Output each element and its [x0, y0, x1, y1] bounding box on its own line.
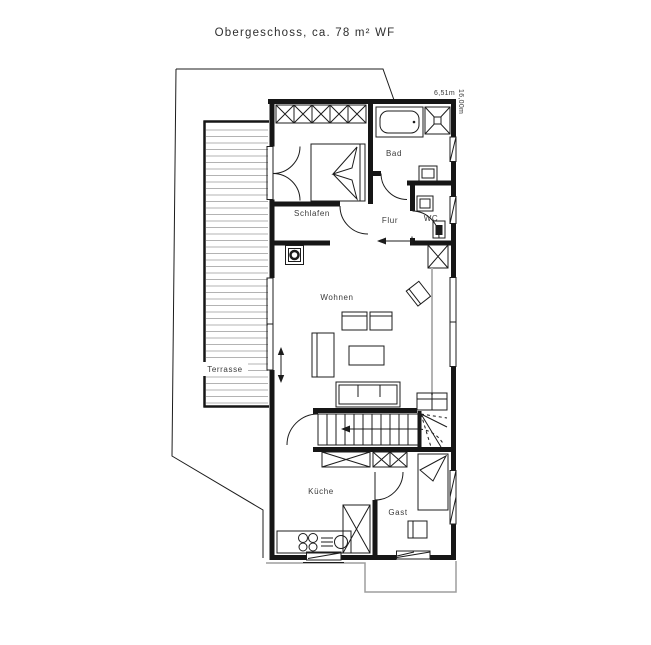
room-label-bad: Bad — [386, 149, 402, 158]
door-stairs-icon — [287, 414, 318, 445]
wardrobe-icon — [276, 105, 366, 123]
dimension-width-label: 6,51m — [434, 90, 455, 97]
window-gast-right-icon — [450, 471, 456, 525]
floorplan-drawing: Obergeschoss, ca. 78 m² WF 6,51m 16,00m … — [0, 0, 651, 645]
room-label-schlafen: Schlafen — [294, 209, 330, 218]
french-door-schlafen-icon — [267, 147, 300, 201]
lounge-chair-icon — [406, 281, 430, 306]
room-label-wc: WC — [424, 214, 439, 223]
dimension-height-label: 16,00m — [457, 89, 464, 114]
room-label-wohnen: Wohnen — [320, 293, 353, 302]
shaft-icon — [428, 245, 448, 268]
washbasin-bad-icon — [419, 166, 437, 181]
bed-icon — [311, 144, 365, 201]
door-bad-icon — [381, 174, 407, 200]
coffee-table-icon — [349, 346, 384, 365]
bathtub-icon — [376, 107, 423, 137]
window-gast-bottom-icon — [397, 551, 431, 559]
lower-floor-outline — [266, 561, 456, 592]
window-bad-icon — [450, 137, 456, 162]
stair-landing-shelf-icon — [417, 393, 447, 410]
guest-bed-icon — [418, 454, 448, 510]
page-title: Obergeschoss, ca. 78 m² WF — [215, 27, 396, 39]
staircase-icon — [318, 414, 447, 447]
window-wohnen-left-icon — [267, 278, 273, 370]
room-label-terrasse: Terrasse — [207, 365, 242, 374]
room-label-kueche: Küche — [308, 487, 334, 496]
room-label-flur: Flur — [382, 216, 398, 225]
window-kueche-bottom-icon — [303, 552, 344, 563]
door-gast-icon — [375, 472, 403, 500]
window-wc-icon — [450, 197, 456, 224]
window-span-arrow — [278, 347, 284, 383]
kitchen-wall-cabinets-icon — [322, 452, 407, 467]
guest-desk-icon — [408, 521, 427, 538]
window-wohnen-right-icon — [450, 278, 456, 367]
room-label-gast: Gast — [388, 508, 407, 517]
door-schlafen-icon — [340, 206, 368, 234]
chimney-icon — [286, 246, 304, 265]
floorplan-canvas: Obergeschoss, ca. 78 m² WF 6,51m 16,00m … — [0, 0, 651, 645]
washbasin-wc-icon — [417, 196, 433, 211]
furniture — [276, 105, 450, 553]
kitchen-tall-cabinet-icon — [343, 505, 370, 553]
armchair-icons — [342, 312, 392, 330]
kitchen-counter-icon — [277, 531, 351, 553]
entry-arrow — [377, 237, 412, 246]
shower-icon — [425, 107, 450, 134]
sideboard-icon — [336, 382, 400, 407]
sofa-icon — [312, 333, 334, 377]
